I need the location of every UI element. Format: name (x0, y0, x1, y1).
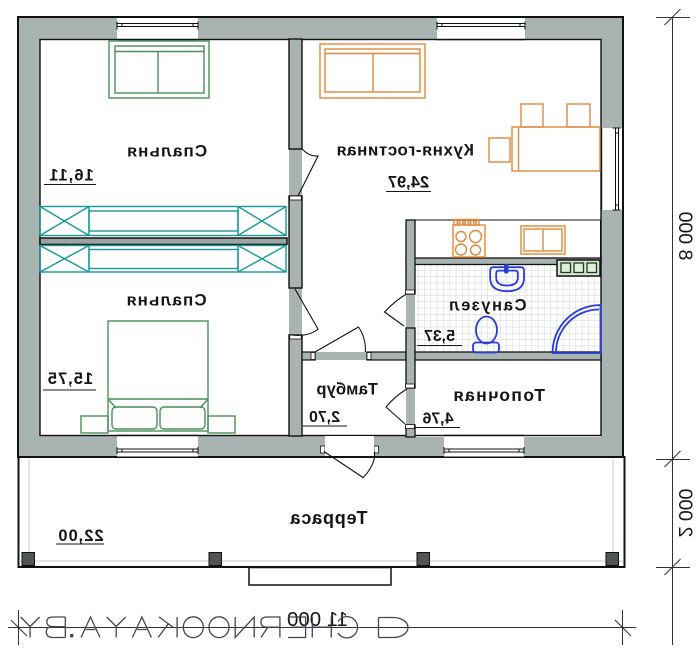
svg-text:8 000: 8 000 (674, 211, 696, 260)
svg-text:Топочная: Топочная (452, 385, 545, 405)
svg-text:22,00: 22,00 (57, 527, 103, 545)
svg-text:5,37: 5,37 (424, 328, 455, 345)
svg-text:Санузел: Санузел (447, 297, 526, 315)
svg-text:16,11: 16,11 (48, 167, 93, 185)
svg-text:2 000: 2 000 (674, 488, 696, 537)
svg-text:Кухня-гостиная: Кухня-гостиная (336, 141, 474, 160)
svg-text:24,97: 24,97 (388, 174, 429, 192)
svg-text:Тамбур: Тамбур (316, 381, 378, 399)
svg-text:Спальня: Спальня (126, 142, 207, 161)
svg-text:Спальня: Спальня (125, 291, 206, 310)
svg-text:4,76: 4,76 (422, 411, 453, 428)
svg-text:Терраса: Терраса (289, 508, 367, 528)
svg-text:2,70: 2,70 (309, 409, 340, 426)
svg-text:15,75: 15,75 (47, 370, 93, 388)
